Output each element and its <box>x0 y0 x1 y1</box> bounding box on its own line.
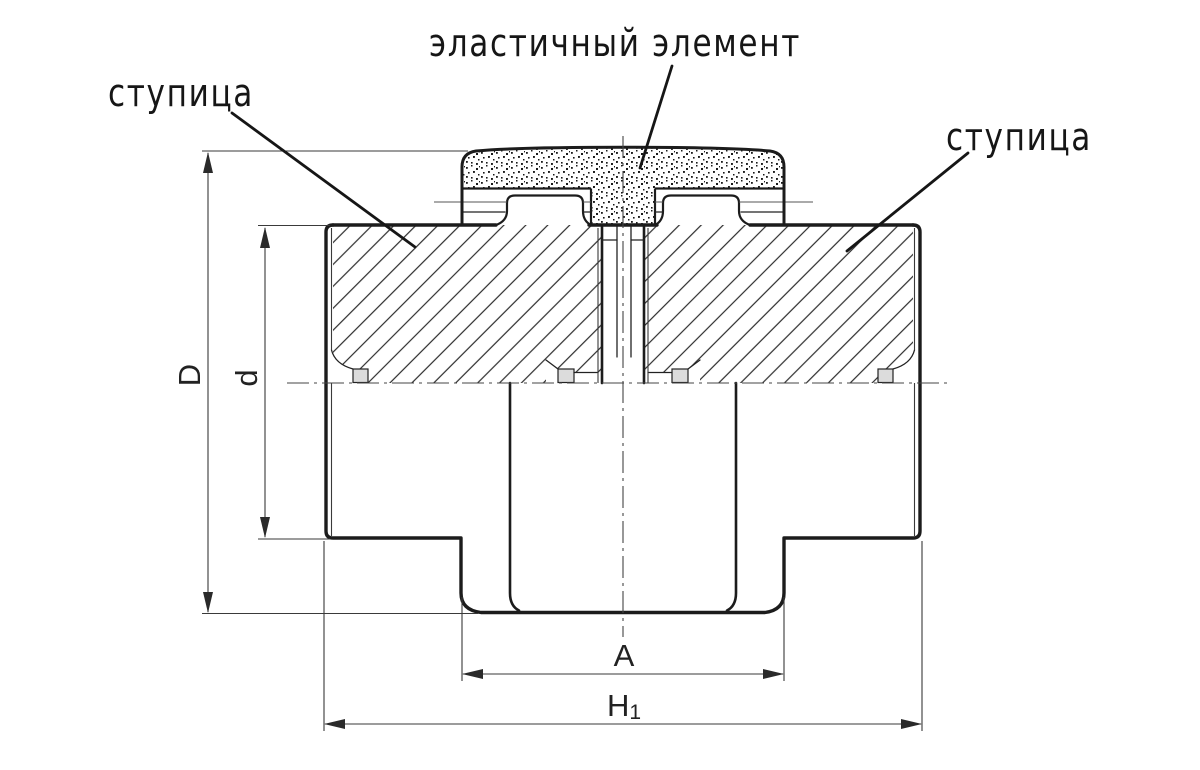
hub-right-section <box>645 225 920 383</box>
keyway-groove <box>878 369 893 383</box>
label-hub-left: ступица <box>108 72 254 116</box>
dim-D-label: D <box>172 364 207 386</box>
dim-d-label: d <box>229 369 264 386</box>
label-hub-right: ступица <box>946 116 1092 160</box>
keyway-groove <box>353 369 368 383</box>
keyway-groove <box>558 369 574 383</box>
hub-left-section <box>326 225 601 383</box>
dim-A-label: A <box>614 638 635 673</box>
coupling-section-drawing: D d A H1 эластичный элемент ступица ступ… <box>0 0 1200 770</box>
dim-H1-base: H <box>607 688 629 723</box>
keyway-groove <box>672 369 688 383</box>
label-elastic-element: эластичный элемент <box>429 22 801 66</box>
jaw-prong-right <box>655 196 750 226</box>
technical-drawing-page: D d A H1 эластичный элемент ступица ступ… <box>0 0 1200 770</box>
dim-H1-subscript: 1 <box>629 701 641 724</box>
jaw-prong-left <box>496 196 591 226</box>
